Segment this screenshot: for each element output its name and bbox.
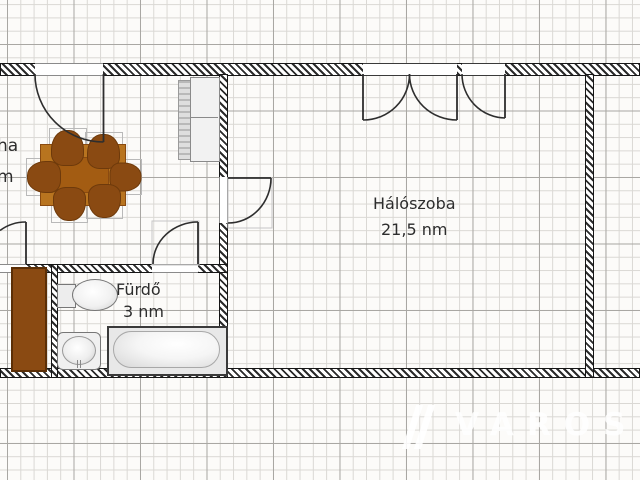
single-door-arc (462, 74, 505, 118)
bedroom-door-arc (228, 178, 271, 223)
double-door-right-arc (410, 74, 458, 120)
left-door-arc (0, 222, 26, 231)
bedroom-door-box (228, 178, 272, 228)
bathroom-area: 3 nm (123, 303, 164, 321)
bathroom-door-arc (153, 222, 198, 264)
double-door-left-arc (363, 74, 410, 120)
bathroom-label: Fürdő (116, 281, 161, 299)
left-room-label-fragment: ha (0, 137, 18, 156)
floor-plan-canvas: ha m Hálószoba 21,5 nm Fürdő 3 nm VAROSI (0, 0, 640, 480)
bedroom-area: 21,5 nm (381, 221, 447, 239)
bedroom-label: Hálószoba (373, 195, 456, 213)
kitchen-door-arc (35, 74, 104, 142)
watermark-text: VAROSI (455, 407, 640, 443)
left-room-area-fragment: m (0, 168, 14, 187)
